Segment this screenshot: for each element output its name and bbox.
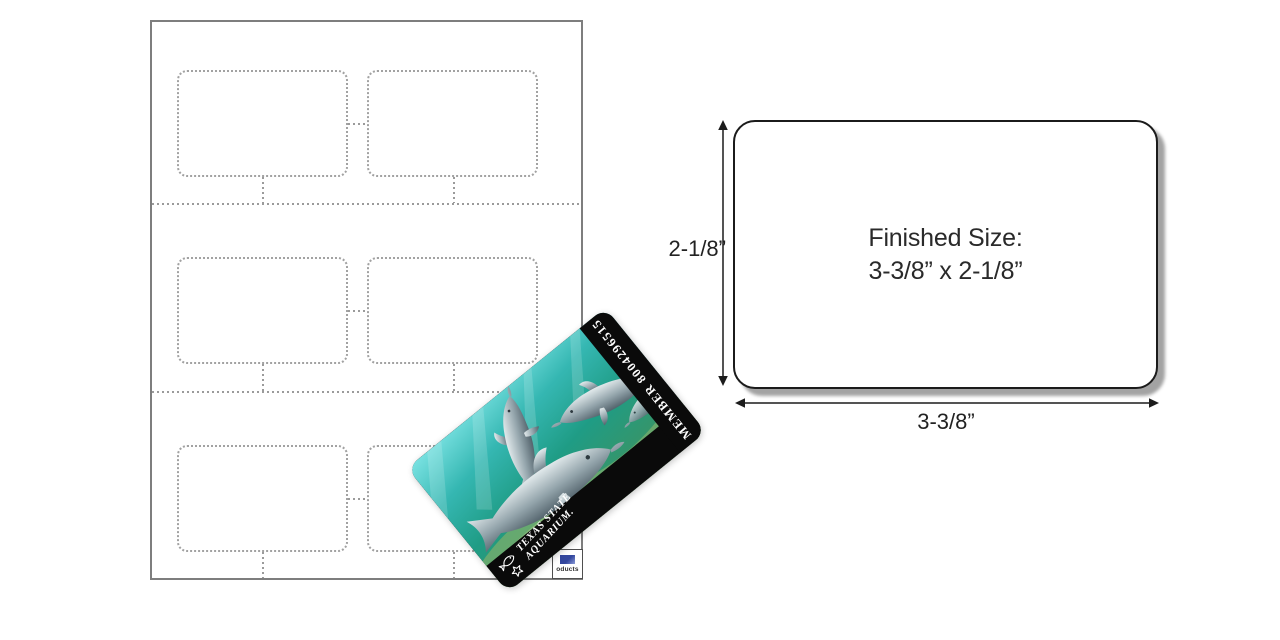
card-slot xyxy=(177,257,348,364)
product-illustration: oducts xyxy=(0,0,1280,640)
card-slot xyxy=(367,70,538,177)
finished-size-title: Finished Size: xyxy=(868,222,1022,255)
finished-size-value: 3-3/8” x 2-1/8” xyxy=(868,255,1022,288)
finished-size-card: Finished Size: 3-3/8” x 2-1/8” xyxy=(733,120,1158,389)
perforation-tick xyxy=(348,498,367,500)
height-dimension-label: 2-1/8” xyxy=(636,236,726,262)
perforation-tick xyxy=(262,364,264,391)
card-slot xyxy=(367,257,538,364)
perforation-tick xyxy=(262,177,264,203)
manufacturer-logo-icon xyxy=(560,555,575,564)
perforation-tick xyxy=(348,123,367,125)
perforation-tick xyxy=(262,552,264,578)
card-slot xyxy=(177,70,348,177)
perforation-line xyxy=(152,203,581,205)
perforation-tick xyxy=(453,552,455,578)
perforation-tick xyxy=(453,364,455,391)
width-dimension-label: 3-3/8” xyxy=(846,409,1046,435)
perforation-tick xyxy=(453,177,455,203)
card-slot xyxy=(177,445,348,552)
manufacturer-logo-text: oducts xyxy=(556,566,579,573)
perforation-tick xyxy=(348,310,367,312)
manufacturer-logo-chip: oducts xyxy=(552,549,583,579)
